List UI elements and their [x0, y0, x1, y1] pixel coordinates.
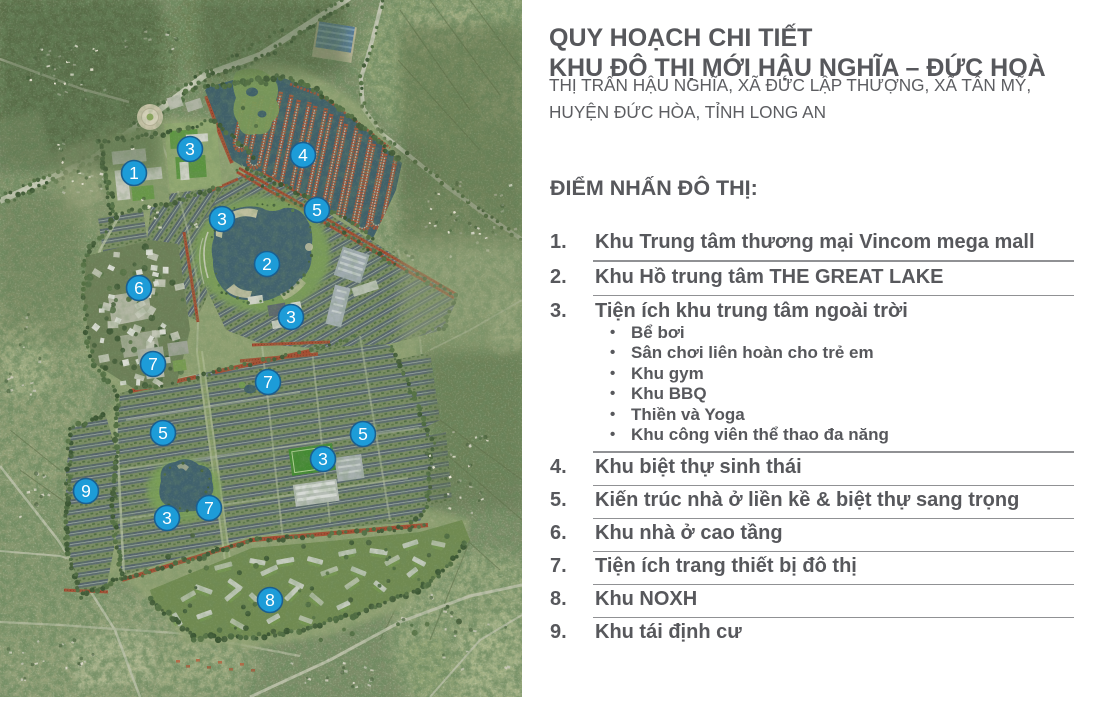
svg-text:3: 3 [318, 449, 328, 469]
svg-text:7: 7 [148, 354, 158, 374]
svg-text:9: 9 [81, 481, 91, 501]
svg-text:7: 7 [204, 498, 214, 518]
svg-text:5: 5 [158, 423, 168, 443]
svg-text:6: 6 [134, 278, 144, 298]
svg-text:5: 5 [358, 424, 368, 444]
svg-text:7: 7 [263, 372, 273, 392]
svg-text:8: 8 [265, 590, 275, 610]
svg-text:3: 3 [217, 209, 227, 229]
svg-text:5: 5 [312, 200, 322, 220]
svg-text:2: 2 [262, 254, 272, 274]
svg-text:1: 1 [129, 163, 139, 183]
svg-text:3: 3 [185, 139, 195, 159]
svg-text:4: 4 [298, 145, 308, 165]
svg-text:3: 3 [162, 508, 172, 528]
svg-text:3: 3 [286, 307, 296, 327]
